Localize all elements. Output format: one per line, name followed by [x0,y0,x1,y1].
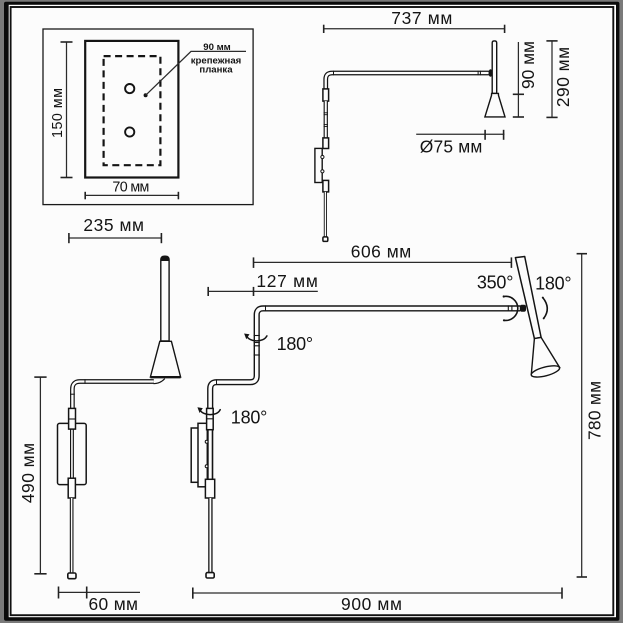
svg-text:180°: 180° [277,334,314,354]
svg-text:180°: 180° [231,408,267,428]
svg-text:70 мм: 70 мм [112,179,149,195]
svg-text:235 мм: 235 мм [83,215,144,235]
svg-text:90 мм: 90 мм [518,41,538,89]
svg-text:900 мм: 900 мм [341,594,402,614]
svg-text:150 мм: 150 мм [50,88,66,138]
svg-text:180°: 180° [535,274,572,294]
svg-text:90 мм: 90 мм [203,42,231,53]
svg-text:350°: 350° [477,273,514,293]
svg-text:737 мм: 737 мм [391,8,452,28]
svg-text:планка: планка [199,64,233,75]
svg-text:780 мм: 780 мм [585,381,605,440]
svg-text:127 мм: 127 мм [256,271,317,291]
svg-text:606 мм: 606 мм [351,242,412,262]
svg-text:490 мм: 490 мм [18,443,38,503]
svg-text:60 мм: 60 мм [89,594,139,614]
svg-text:290 мм: 290 мм [553,47,573,107]
svg-text:Ø75 мм: Ø75 мм [420,136,483,156]
